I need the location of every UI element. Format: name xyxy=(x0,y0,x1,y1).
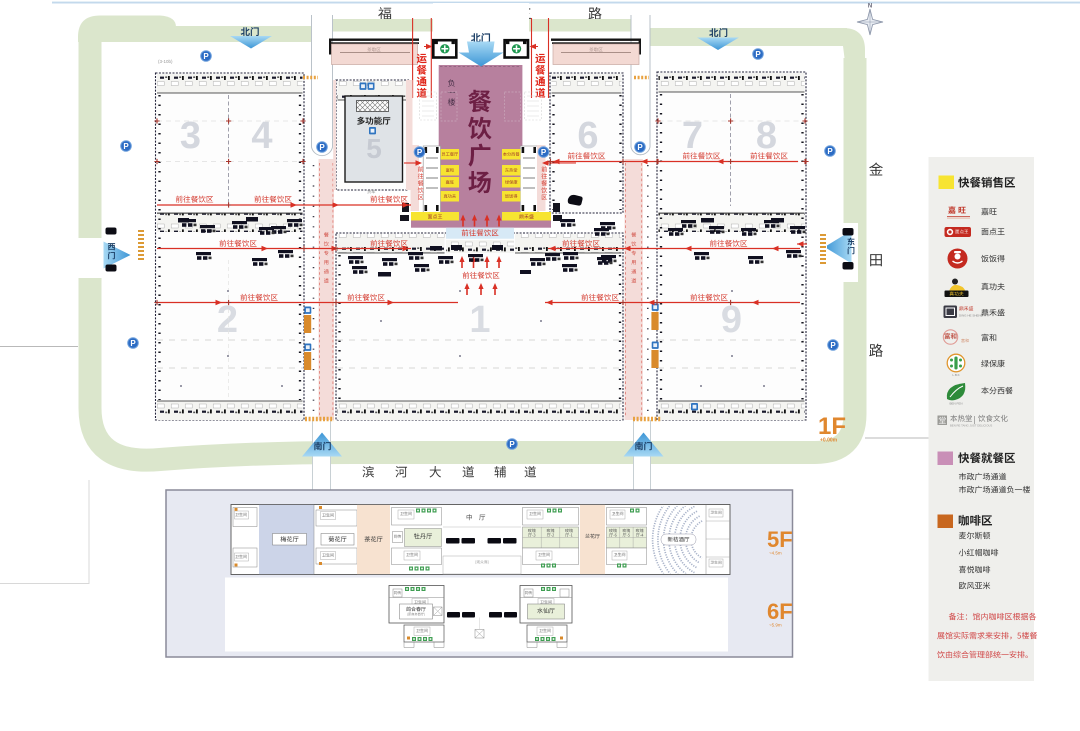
svg-text:+0.00m: +0.00m xyxy=(820,438,838,444)
svg-text:DING HE SHENG: DING HE SHENG xyxy=(959,314,984,318)
svg-text:~5.9m: ~5.9m xyxy=(769,623,782,628)
svg-text:5: 5 xyxy=(366,133,382,164)
svg-text:3: 3 xyxy=(180,115,201,157)
svg-text:7: 7 xyxy=(682,115,703,157)
svg-text:6F: 6F xyxy=(767,599,793,624)
svg-text:~4.5m: ~4.5m xyxy=(769,551,782,556)
svg-text:5F: 5F xyxy=(767,527,793,552)
svg-text:4: 4 xyxy=(251,115,272,157)
svg-text:9: 9 xyxy=(721,299,742,341)
svg-text:L.B.K: L.B.K xyxy=(952,373,959,377)
svg-text:BEN FEN: BEN FEN xyxy=(949,402,962,406)
svg-text:2: 2 xyxy=(217,299,238,341)
svg-text:1F: 1F xyxy=(818,413,846,440)
svg-text:(3-10b): (3-10b) xyxy=(158,59,173,64)
svg-text:8: 8 xyxy=(756,115,777,157)
svg-text:6: 6 xyxy=(577,115,598,157)
svg-text:BEN RE TANG JUST DELICIOUS: BEN RE TANG JUST DELICIOUS xyxy=(950,424,992,428)
svg-text:1: 1 xyxy=(469,299,490,341)
svg-text:N: N xyxy=(868,4,872,10)
